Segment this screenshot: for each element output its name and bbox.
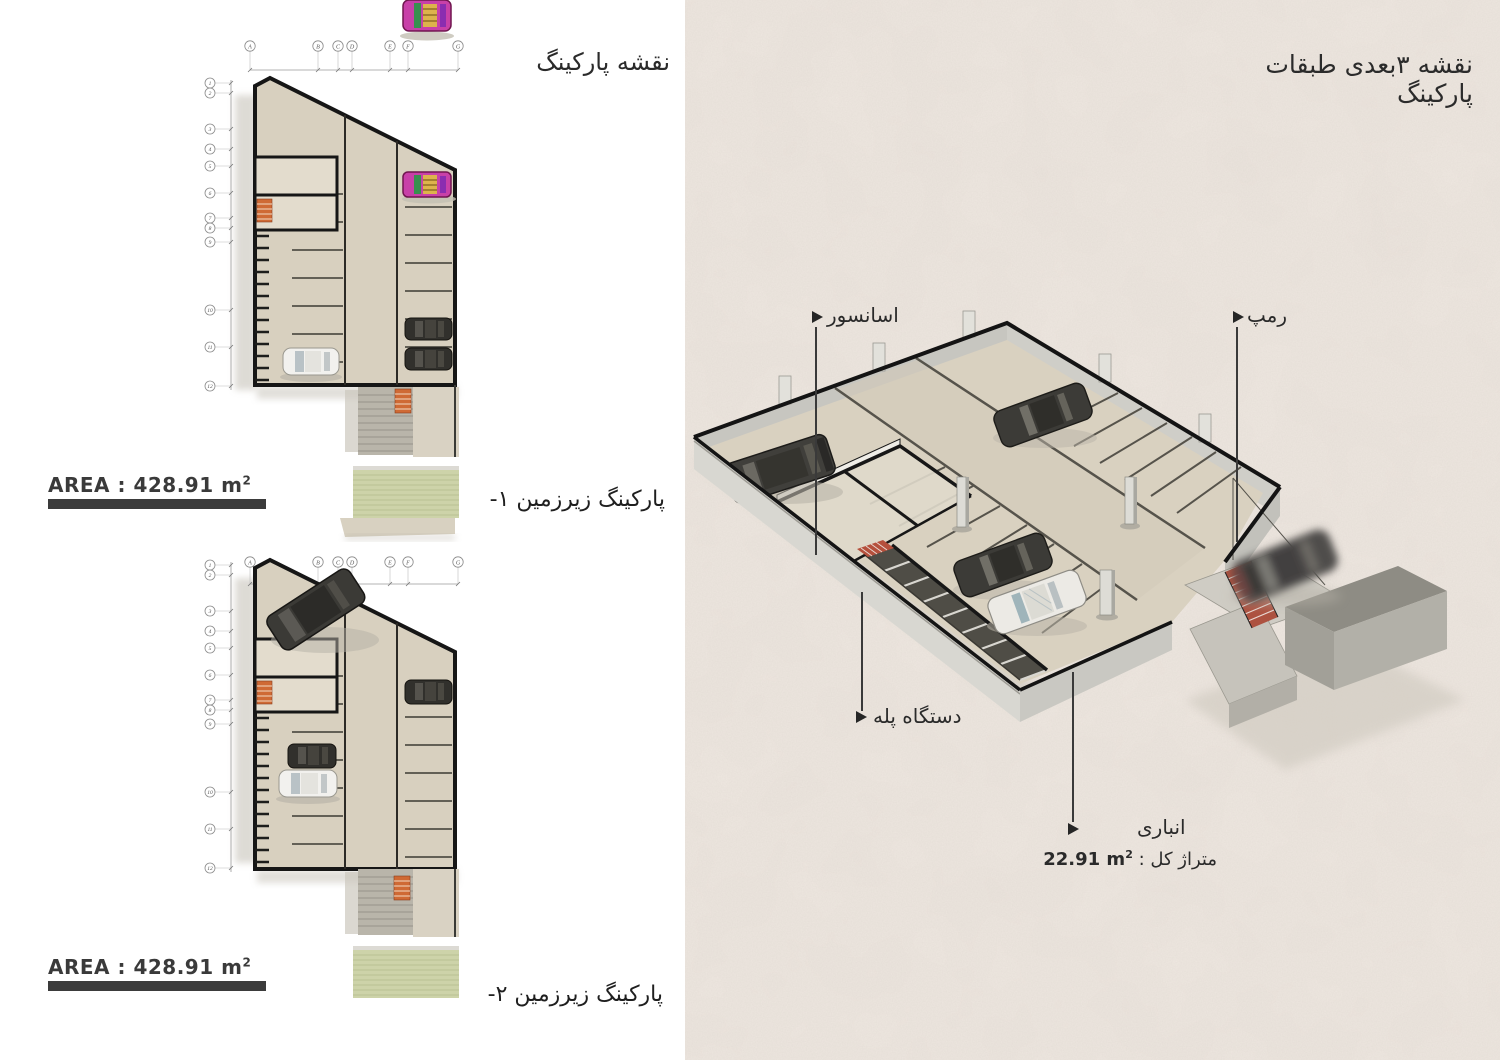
svg-text:G: G <box>456 45 461 51</box>
svg-text:E: E <box>387 561 392 567</box>
plan-caption-1: پارکینگ زیرزمین ۱- <box>480 487 665 512</box>
sports-car-plan <box>402 172 456 204</box>
area-label-2: AREA : 428.91 m2 <box>48 955 266 979</box>
floor-plan-2: AB CD EF G 12 34 56 78 910 1112 <box>195 518 485 1023</box>
sports-car-top <box>400 0 454 41</box>
svg-text:4: 4 <box>209 146 212 153</box>
svg-text:3: 3 <box>208 127 212 133</box>
svg-text:C: C <box>336 561 341 567</box>
svg-text:A: A <box>247 45 252 51</box>
total-area-value: 22.91 m2 <box>1043 849 1133 870</box>
stair-orange <box>257 681 272 704</box>
area-bar-1 <box>48 499 266 509</box>
svg-text:6: 6 <box>209 673 212 679</box>
svg-text:3: 3 <box>208 609 212 615</box>
left-panel-title: نقشه پارکینگ <box>465 48 670 76</box>
svg-text:9: 9 <box>209 240 212 246</box>
ramp-marker-icon <box>1233 311 1244 323</box>
svg-text:12: 12 <box>207 866 213 872</box>
right-panel: نقشه ۳بعدی طبقات پارکینگ <box>685 0 1500 1060</box>
iso-view <box>685 0 1500 1060</box>
grass-area <box>353 470 459 518</box>
svg-text:8: 8 <box>209 708 212 714</box>
svg-text:F: F <box>405 561 410 567</box>
svg-text:7: 7 <box>209 216 212 222</box>
white-car <box>280 348 342 382</box>
svg-text:E: E <box>387 45 392 51</box>
storage-marker-icon <box>1068 823 1079 835</box>
svg-text:2: 2 <box>209 91 212 97</box>
dark-car-1 <box>405 318 452 340</box>
svg-text:11: 11 <box>207 345 212 351</box>
svg-text:5: 5 <box>209 646 212 652</box>
svg-text:10: 10 <box>207 308 213 314</box>
grass-area <box>353 950 459 998</box>
area-block-1: AREA : 428.91 m2 <box>48 473 266 509</box>
ramp-court <box>345 869 459 998</box>
wall-pilaster <box>779 376 791 404</box>
svg-text:C: C <box>336 45 341 51</box>
svg-text:10: 10 <box>207 790 213 796</box>
svg-text:F: F <box>405 45 410 51</box>
ramp-label: رمپ <box>1247 303 1287 327</box>
svg-text:D: D <box>349 561 355 567</box>
svg-text:4: 4 <box>209 628 212 635</box>
ramp-stair-orange <box>394 876 410 900</box>
svg-text:5: 5 <box>209 164 212 170</box>
stair-orange <box>257 199 272 222</box>
svg-text:7: 7 <box>209 698 212 704</box>
grid-column-labels: AB CD EF G <box>247 45 461 51</box>
dark-car-right <box>405 680 452 704</box>
svg-text:B: B <box>316 561 320 567</box>
stairs-leader-line <box>861 592 863 711</box>
plan-caption-2: پارکینگ زیرزمین ۲- <box>473 982 663 1007</box>
svg-text:8: 8 <box>209 226 212 232</box>
storage-label: انباری <box>1137 815 1186 839</box>
svg-text:A: A <box>247 561 252 567</box>
dark-car-left <box>288 744 336 768</box>
total-area-label: متراژ کل : <box>1139 849 1217 870</box>
area-bar-2 <box>48 981 266 991</box>
total-area: متراژ کل : 22.91 m2 <box>1033 848 1217 870</box>
svg-text:2: 2 <box>209 573 212 579</box>
sheet: نقشه پارکینگ AB CD <box>0 0 1500 1060</box>
stairs-marker-icon <box>856 711 867 723</box>
upper-slab-strip <box>340 518 455 537</box>
floor-plan-1: AB CD EF G 12 34 56 78 910 1112 <box>195 0 485 520</box>
elevator-label: اسانسور <box>827 303 899 327</box>
dark-car-2 <box>405 348 452 370</box>
core-rooms <box>255 157 337 230</box>
elevator-leader-line <box>815 327 817 555</box>
svg-text:B: B <box>316 45 320 51</box>
svg-text:9: 9 <box>209 722 212 728</box>
area-label-1: AREA : 428.91 m2 <box>48 473 266 497</box>
elevator-marker-icon <box>812 311 823 323</box>
wall-pilaster <box>963 311 975 337</box>
stairs-label: دستگاه پله <box>873 704 962 728</box>
ramp-leader-line <box>1236 327 1238 542</box>
svg-text:D: D <box>349 45 355 51</box>
grid-row-labels: 12 34 56 78 910 1112 <box>207 563 213 872</box>
svg-text:G: G <box>456 561 461 567</box>
ramp-stair-orange <box>395 389 411 413</box>
storage-leader-line <box>1072 672 1074 822</box>
area-block-2: AREA : 428.91 m2 <box>48 955 266 991</box>
svg-text:11: 11 <box>207 827 212 833</box>
grid-row-labels: 12 34 56 78 910 1112 <box>207 81 213 390</box>
white-car <box>276 770 340 804</box>
svg-text:12: 12 <box>207 384 213 390</box>
svg-text:6: 6 <box>209 191 212 197</box>
svg-text:1: 1 <box>209 81 212 87</box>
svg-text:1: 1 <box>209 563 212 569</box>
ramp-court <box>345 385 459 518</box>
